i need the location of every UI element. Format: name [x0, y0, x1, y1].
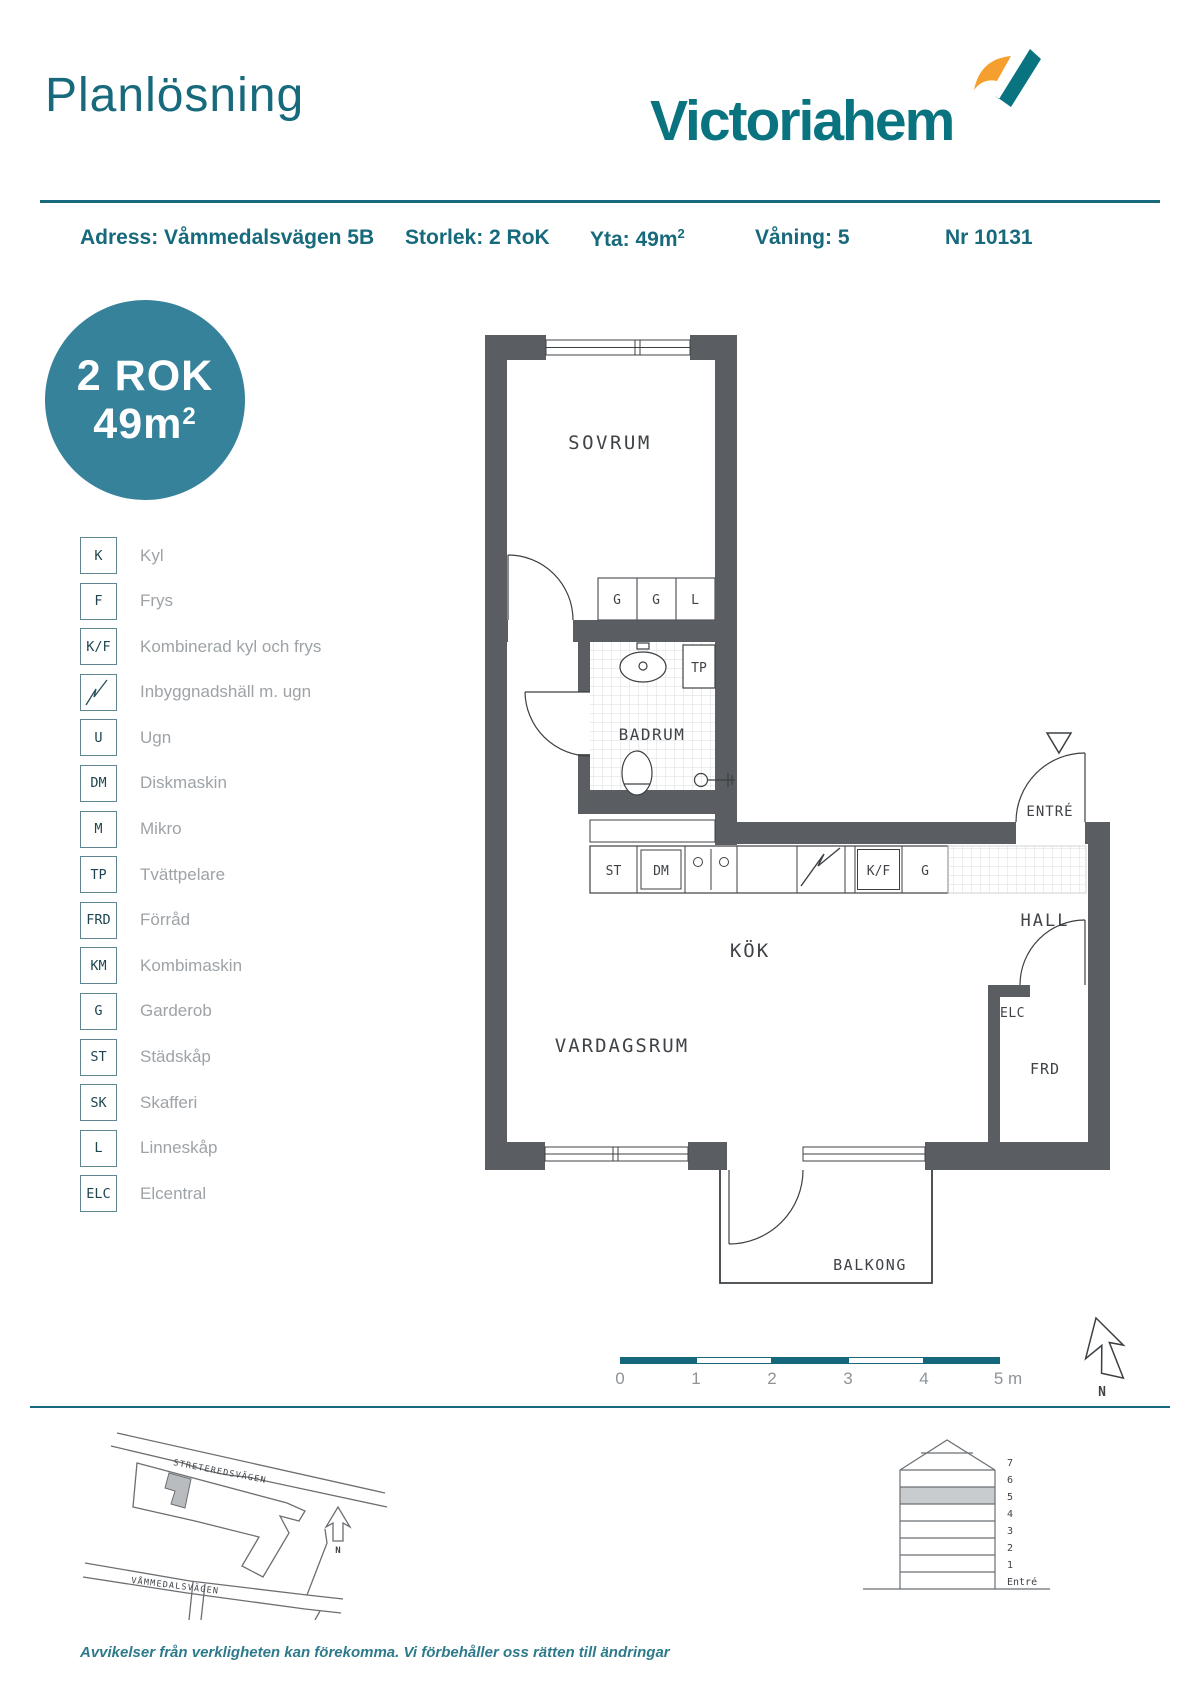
room-label-badrum: BADRUM [619, 725, 686, 744]
victoriahem-wordmark: Victoriahem [650, 88, 953, 154]
room-label-hall: HALL [1021, 911, 1070, 931]
window-livingroom [545, 1147, 688, 1161]
scalebar-segment [924, 1357, 1000, 1364]
legend-key: SK [80, 1084, 117, 1121]
floorplan-drawing: TP G G L [485, 335, 1110, 1290]
cleaning-closet-label: ST [606, 864, 622, 879]
legend-item-elc: ELCElcentral [80, 1175, 321, 1212]
scalebar-tick: 5 m [994, 1369, 1022, 1389]
room-label-kok: KÖK [730, 939, 770, 962]
info-address: Adress: Våmmedalsvägen 5B [80, 226, 374, 250]
header-divider [40, 200, 1160, 203]
room-label-entre: ENTRÉ [1026, 803, 1073, 820]
footer-divider [30, 1406, 1170, 1408]
wardrobe-label: G [652, 593, 660, 608]
building-elevation: 7 6 5 4 3 2 1 Entré [845, 1428, 1055, 1613]
room-label-sovrum: SOVRUM [568, 432, 652, 454]
victoriahem-logo-icon [966, 46, 1046, 110]
info-area: Yta: 49m2 [590, 226, 685, 252]
north-arrow-icon: N [1072, 1314, 1136, 1402]
site-map: STRETEREDSVÄGEN VÅMMEDALSVÄGEN N [75, 1425, 395, 1620]
legend-item-g: GGarderob [80, 993, 321, 1030]
legend-item-mikro: MMikro [80, 811, 321, 848]
disclaimer-text: Avvikelser från verkligheten kan förekom… [80, 1644, 670, 1661]
window-bedroom [546, 340, 690, 355]
page-title: Planlösning [45, 68, 304, 123]
victoriahem-logo: Victoriahem [650, 48, 1070, 163]
scalebar-segment [848, 1357, 924, 1364]
wardrobe-label: G [613, 593, 621, 608]
floorplan-page: Planlösning Victoriahem Adress: Våmmedal… [0, 0, 1200, 1698]
north-label: N [335, 1546, 340, 1556]
balcony-door [729, 1170, 803, 1244]
scalebar-tick: 3 [843, 1369, 852, 1389]
site-map-highlighted-unit [165, 1473, 191, 1508]
scalebar-tick: 0 [615, 1369, 624, 1389]
legend-item-frys: FFrys [80, 583, 321, 620]
scalebar-segment [696, 1357, 772, 1364]
legend-key: ST [80, 1039, 117, 1076]
room-label-vardagsrum: VARDAGSRUM [555, 1035, 689, 1057]
legend-key: G [80, 993, 117, 1030]
window-balcony [803, 1147, 925, 1161]
size-badge: 2 ROK 49m2 [45, 300, 245, 500]
legend-key: FRD [80, 902, 117, 939]
tp-label: TP [691, 661, 707, 676]
room-label-elc: ELC [1000, 1006, 1025, 1021]
street-name-bottom: VÅMMEDALSVÄGEN [131, 1574, 220, 1597]
bathroom-door [525, 692, 590, 756]
kitchen-counter: ST DM K/F G [590, 846, 948, 893]
legend-key: ELC [80, 1175, 117, 1212]
room-label-balkong: BALKONG [833, 1256, 907, 1274]
hob-zigzag-icon [80, 674, 117, 711]
scalebar-tick: 2 [767, 1369, 776, 1389]
legend-item-tp: TPTvättpelare [80, 856, 321, 893]
washer-tower-box: TP [683, 645, 715, 688]
hall-wardrobe-label: G [921, 864, 929, 879]
legend-item-hob: Inbyggnadshäll m. ugn [80, 674, 321, 711]
floor-label-entre: Entré [1007, 1576, 1037, 1588]
scalebar-segment [772, 1357, 848, 1364]
floor-label-1: 1 [1007, 1560, 1013, 1571]
legend-item-kf: K/FKombinerad kyl och frys [80, 628, 321, 665]
badge-rooms: 2 ROK [77, 352, 213, 400]
floor-label-2: 2 [1007, 1543, 1013, 1554]
legend-key: K/F [80, 628, 117, 665]
hall-floor-tiles [948, 846, 1086, 893]
legend-item-km: KMKombimaskin [80, 947, 321, 984]
linen-closet-label: L [691, 593, 699, 608]
legend-item-dm: DMDiskmaskin [80, 765, 321, 802]
legend-key: DM [80, 765, 117, 802]
legend-item-frd: FRDFörråd [80, 902, 321, 939]
fridge-freezer-label: K/F [867, 864, 891, 879]
legend-item-kyl: KKyl [80, 537, 321, 574]
toilet-icon [622, 751, 652, 795]
dishwasher-label: DM [653, 864, 669, 879]
legend-key: U [80, 719, 117, 756]
site-map-north-arrow-icon: N [326, 1507, 350, 1556]
legend-key: F [80, 583, 117, 620]
floor-label-4: 4 [1007, 1509, 1013, 1520]
room-label-frd: FRD [1030, 1060, 1060, 1078]
scalebar-segment [620, 1357, 696, 1364]
entrance-marker-icon [1047, 733, 1071, 753]
legend-item-st: STStädskåp [80, 1039, 321, 1076]
floor-label-5: 5 [1007, 1492, 1013, 1503]
scalebar-tick: 4 [919, 1369, 928, 1389]
info-number: Nr 10131 [945, 226, 1033, 250]
legend: KKyl FFrys K/FKombinerad kyl och frys In… [80, 537, 321, 1212]
legend-key: TP [80, 856, 117, 893]
legend-key: KM [80, 947, 117, 984]
site-map-building-outline [133, 1463, 305, 1577]
kitchen-niche [590, 820, 715, 842]
info-size: Storlek: 2 RoK [405, 226, 550, 250]
bedroom-wardrobes: G G L [598, 578, 715, 620]
info-floor: Våning: 5 [755, 226, 850, 250]
scalebar-tick: 1 [691, 1369, 700, 1389]
legend-item-ugn: UUgn [80, 719, 321, 756]
legend-item-l: LLinneskåp [80, 1130, 321, 1167]
highlighted-floor-band [900, 1487, 995, 1504]
legend-key: L [80, 1130, 117, 1167]
floor-label-7: 7 [1007, 1458, 1013, 1469]
legend-key: M [80, 811, 117, 848]
legend-item-sk: SKSkafferi [80, 1084, 321, 1121]
bedroom-door [508, 555, 573, 620]
floor-label-3: 3 [1007, 1526, 1013, 1537]
legend-key: K [80, 537, 117, 574]
floor-label-6: 6 [1007, 1475, 1013, 1486]
north-label: N [1098, 1385, 1106, 1400]
elevation-outline [863, 1440, 1050, 1589]
badge-area: 49m2 [93, 400, 196, 448]
